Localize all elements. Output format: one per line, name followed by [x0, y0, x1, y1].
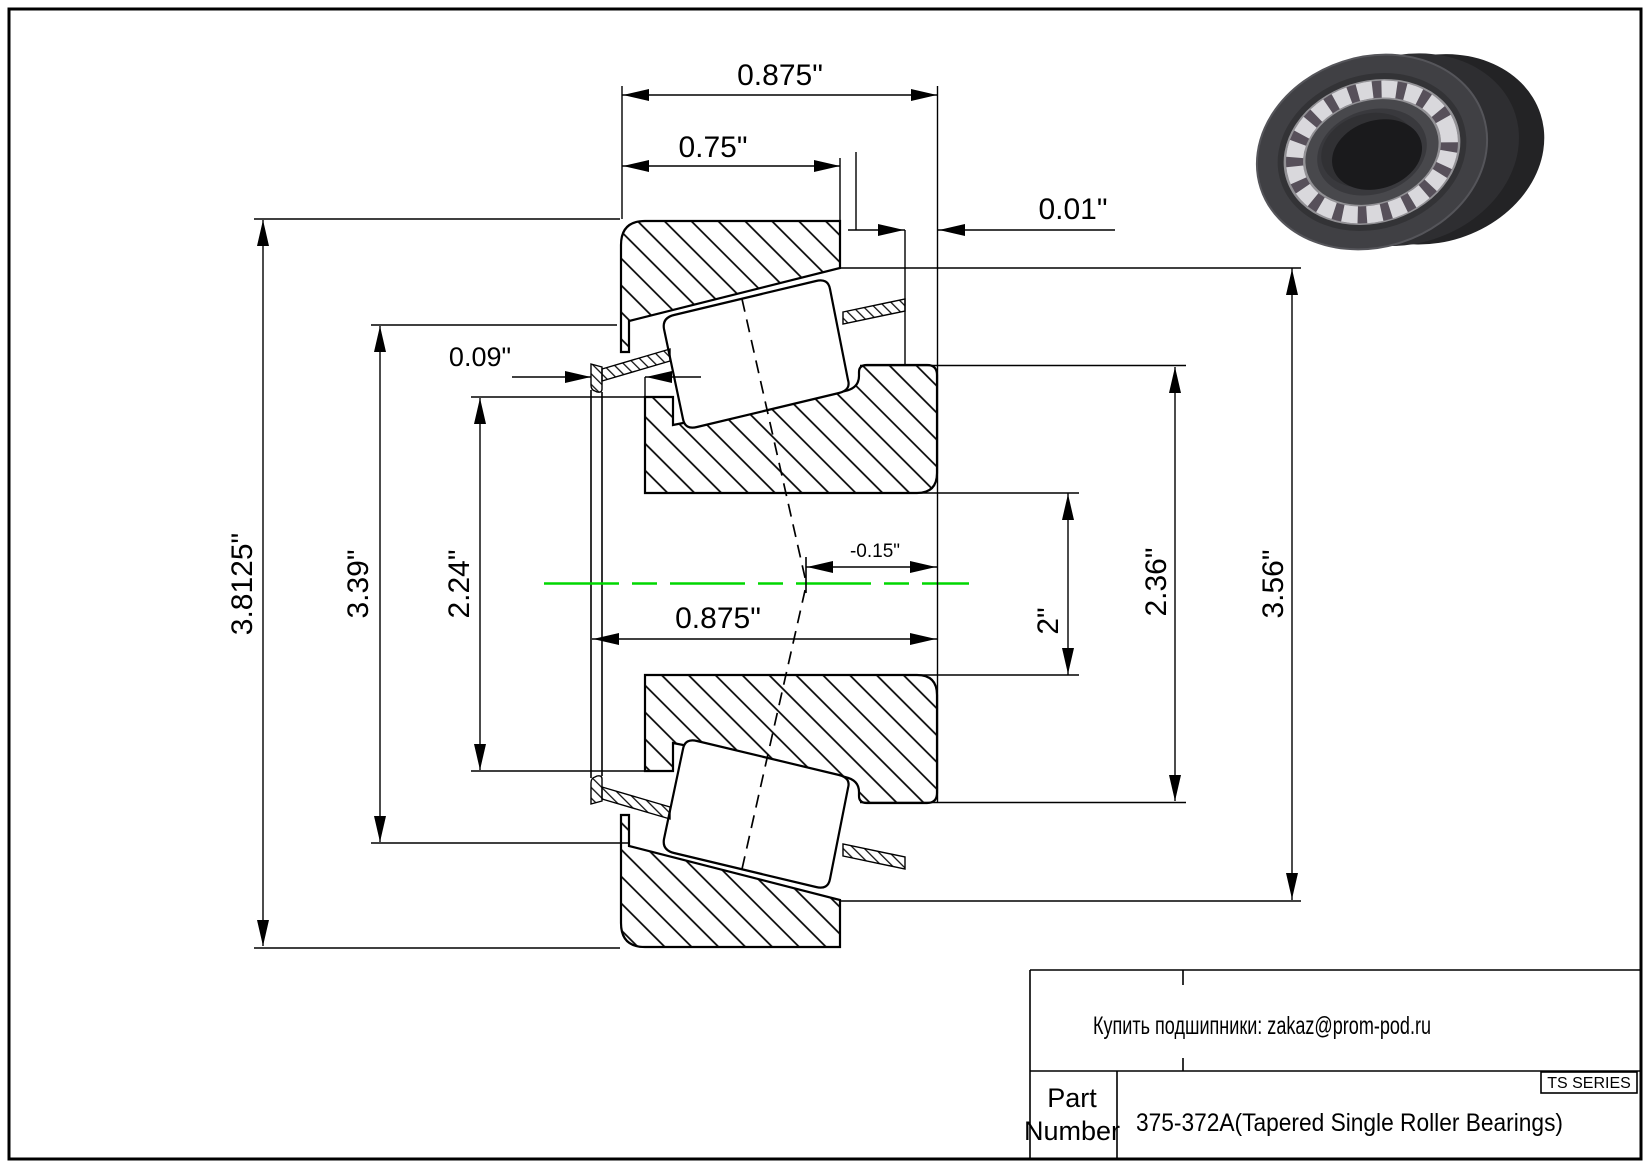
- part-label-line1: Part: [1047, 1083, 1097, 1113]
- dim-cage-diameter: 3.39": [342, 549, 375, 618]
- dim-back-gap: 0.01": [1038, 193, 1107, 226]
- dim-center-offset: -0.15": [850, 541, 900, 562]
- dim-back-rib-diameter: 2.36": [1140, 547, 1173, 616]
- dim-overall-width: 0.875": [737, 59, 823, 92]
- dim-bore-diameter: 2": [1032, 607, 1065, 634]
- part-number-text: 375-372A(Tapered Single Roller Bearings): [1136, 1109, 1563, 1137]
- cage-lip-upper: [591, 364, 602, 392]
- contact-text: Купить подшипники: zakaz@prom-pod.ru: [1093, 1012, 1431, 1040]
- dim-front-protrusion: 0.09": [449, 342, 511, 372]
- dim-front-rib-diameter: 2.24": [443, 549, 476, 618]
- dim-cup-outer-diameter: 3.56": [1257, 549, 1290, 618]
- part-label-line2: Number: [1024, 1116, 1120, 1146]
- cage-lip-lower: [591, 776, 602, 804]
- dim-cone-width: 0.875": [675, 602, 761, 635]
- dim-cup-width: 0.75": [678, 131, 747, 164]
- series-label: TS SERIES: [1547, 1075, 1631, 1092]
- dim-flange-diameter: 3.8125": [226, 533, 259, 635]
- bearing-engineering-drawing: 0.875" 0.75" 0.01" 0.09" 0.875" -0.15" 3…: [0, 0, 1649, 1167]
